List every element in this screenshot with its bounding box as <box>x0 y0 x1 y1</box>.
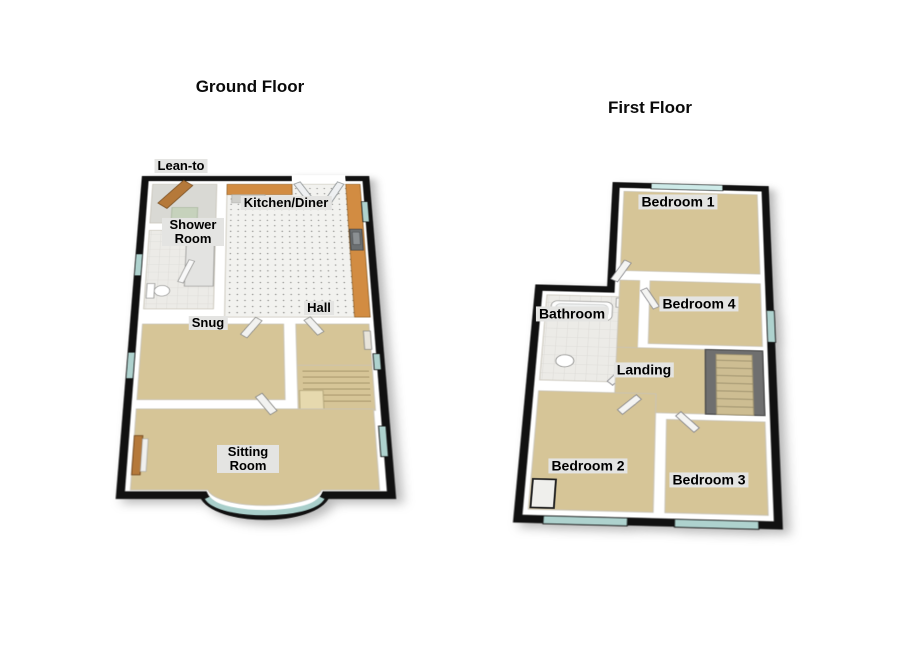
room-label-bathroom: Bathroom <box>536 306 608 321</box>
room-label-bedroom-4: Bedroom 4 <box>659 296 738 311</box>
room-label-kitchen-diner: Kitchen/Diner <box>241 196 332 210</box>
window-kitchen-right <box>361 202 369 222</box>
toilet-cistern <box>146 284 155 299</box>
toilet-bowl <box>154 286 170 297</box>
ground-staircase <box>297 365 376 410</box>
room-label-bedroom-3: Bedroom 3 <box>669 472 748 487</box>
ground-floor-drawing <box>104 171 404 550</box>
window-bedroom-4-right <box>766 310 775 342</box>
bedroom-2-room <box>528 391 656 513</box>
first-staircase <box>705 349 764 415</box>
bedroom-4-room <box>639 281 763 347</box>
ground-floor-plan <box>104 171 404 550</box>
kitchen-counter-top <box>227 184 292 194</box>
bathroom-toilet <box>555 355 574 368</box>
room-label-snug: Snug <box>189 316 228 330</box>
room-label-landing: Landing <box>614 362 674 377</box>
window-snug-left <box>126 352 135 378</box>
room-label-bedroom-2: Bedroom 2 <box>548 458 627 473</box>
window-bedroom-2-bottom <box>543 516 628 526</box>
first-floor-title: First Floor <box>608 98 692 118</box>
room-label-shower-room: Shower Room <box>162 218 224 246</box>
hall-room <box>296 317 373 366</box>
window-bedroom-3-bottom <box>674 519 758 529</box>
bedroom-3-room <box>665 411 768 515</box>
window-shower-left <box>134 254 142 276</box>
front-door <box>363 331 371 349</box>
window-hall-sidelight <box>373 354 381 370</box>
room-label-hall: Hall <box>304 301 334 315</box>
ground-floor-title: Ground Floor <box>196 77 305 97</box>
room-label-lean-to: Lean-to <box>155 159 208 173</box>
bedroom-2-closet <box>530 479 556 508</box>
room-label-bedroom-1: Bedroom 1 <box>638 194 717 209</box>
floorplan-canvas: Ground Floor <box>0 0 900 655</box>
room-label-sitting-room: Sitting Room <box>217 445 279 473</box>
